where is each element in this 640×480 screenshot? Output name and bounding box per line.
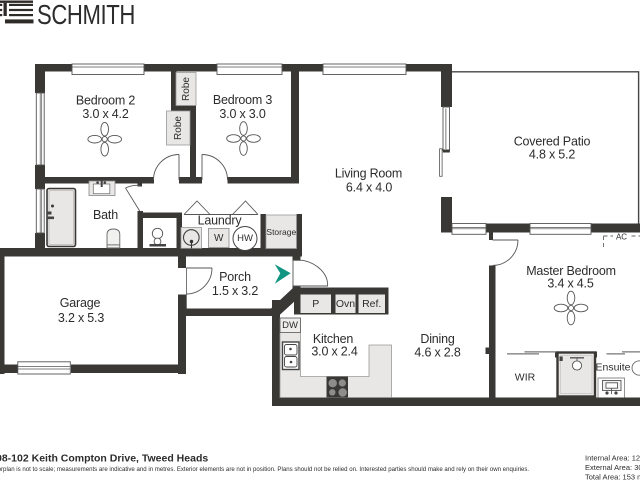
svg-text:Internal Area: 123 m²: Internal Area: 123 m² [585,454,640,463]
svg-text:SCHMITH: SCHMITH [37,0,135,31]
svg-text:Living Room: Living Room [335,167,402,181]
svg-text:Total Area: 153 m²: Total Area: 153 m² [585,472,640,480]
svg-text:6.4 x 4.0: 6.4 x 4.0 [346,180,392,194]
svg-text:External Area: 30 m²: External Area: 30 m² [585,463,640,472]
svg-text:98-102 Keith Compton Drive, Tw: 98-102 Keith Compton Drive, Tweed Heads [0,453,208,465]
svg-text:W: W [214,233,224,244]
svg-text:Storage: Storage [266,227,296,237]
svg-text:3.0 x 3.0: 3.0 x 3.0 [219,107,265,121]
svg-text:4.8 x 5.2: 4.8 x 5.2 [529,148,575,162]
svg-text:HW: HW [237,233,253,244]
svg-text:3.0 x 4.2: 3.0 x 4.2 [82,107,128,121]
svg-text:Garage: Garage [60,296,101,310]
svg-text:Dining: Dining [420,332,454,346]
svg-text:Bedroom 2: Bedroom 2 [76,94,136,108]
svg-text:3.2 x 5.3: 3.2 x 5.3 [58,311,104,325]
svg-text:WIR: WIR [515,372,536,384]
svg-text:Ref.: Ref. [362,298,381,310]
svg-text:Bath: Bath [93,208,118,222]
svg-text:Robe: Robe [181,77,192,101]
svg-text:This floorplan is not to scale: This floorplan is not to scale; measurem… [0,466,529,473]
svg-text:Porch: Porch [219,270,251,284]
svg-text:Ensuite: Ensuite [595,362,630,374]
svg-text:Bedroom 3: Bedroom 3 [213,93,273,107]
svg-text:AC: AC [616,232,627,241]
svg-text:Laundry: Laundry [198,213,243,227]
svg-text:Covered Patio: Covered Patio [514,134,591,148]
svg-text:Robe: Robe [173,116,184,140]
svg-text:3.4 x 4.5: 3.4 x 4.5 [547,277,593,291]
svg-text:3.0 x 2.4: 3.0 x 2.4 [311,345,357,359]
svg-text:DW: DW [282,320,298,331]
svg-text:P: P [312,298,319,310]
svg-text:Ovn: Ovn [336,298,355,310]
svg-text:4.6 x 2.8: 4.6 x 2.8 [414,346,460,360]
svg-text:1.5 x 3.2: 1.5 x 3.2 [212,284,258,298]
